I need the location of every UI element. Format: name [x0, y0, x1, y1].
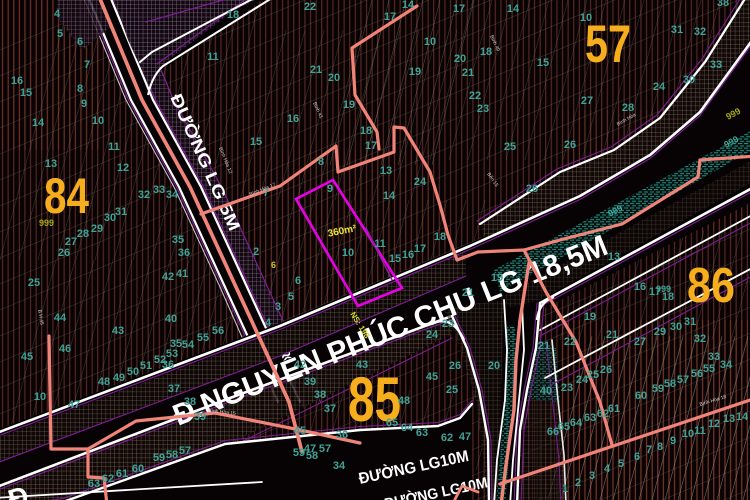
- svg-text:20: 20: [488, 360, 500, 372]
- svg-text:14: 14: [383, 190, 396, 202]
- svg-text:3: 3: [589, 470, 595, 482]
- svg-text:8: 8: [657, 441, 663, 453]
- svg-text:45: 45: [426, 371, 438, 383]
- svg-text:8: 8: [77, 83, 83, 95]
- svg-text:50: 50: [127, 366, 139, 378]
- svg-text:16: 16: [402, 249, 414, 261]
- svg-text:6: 6: [634, 451, 640, 463]
- svg-text:19: 19: [343, 99, 355, 111]
- svg-text:58: 58: [306, 450, 318, 462]
- svg-text:29: 29: [91, 223, 103, 235]
- svg-text:20: 20: [328, 72, 340, 84]
- svg-text:8: 8: [318, 156, 324, 168]
- svg-text:64: 64: [401, 422, 414, 434]
- svg-text:43: 43: [356, 359, 368, 371]
- svg-text:24: 24: [414, 176, 427, 188]
- svg-text:19: 19: [491, 272, 503, 284]
- svg-text:86: 86: [687, 259, 735, 313]
- svg-text:11: 11: [207, 51, 219, 63]
- svg-text:56: 56: [212, 325, 224, 337]
- svg-text:21: 21: [462, 287, 474, 299]
- svg-text:999: 999: [39, 218, 54, 228]
- svg-text:9: 9: [81, 98, 87, 110]
- svg-text:16: 16: [11, 75, 23, 87]
- svg-text:57: 57: [179, 445, 191, 457]
- svg-text:18: 18: [227, 9, 239, 21]
- svg-text:18: 18: [480, 46, 492, 58]
- svg-text:58: 58: [166, 449, 178, 461]
- svg-text:63: 63: [416, 427, 428, 439]
- svg-text:21: 21: [538, 340, 550, 352]
- svg-text:53: 53: [166, 348, 178, 360]
- svg-text:31: 31: [684, 316, 696, 328]
- svg-text:11: 11: [374, 238, 386, 250]
- svg-text:64: 64: [570, 417, 583, 429]
- svg-text:7: 7: [646, 444, 652, 456]
- svg-text:63: 63: [584, 412, 596, 424]
- svg-text:57: 57: [677, 374, 689, 386]
- svg-text:36: 36: [336, 429, 348, 441]
- svg-text:27: 27: [634, 336, 646, 348]
- svg-text:13: 13: [380, 165, 392, 177]
- svg-text:60: 60: [132, 463, 144, 475]
- svg-text:13: 13: [45, 158, 57, 170]
- svg-text:6: 6: [271, 260, 276, 270]
- svg-text:12: 12: [117, 162, 129, 174]
- svg-text:17: 17: [453, 3, 465, 15]
- svg-text:10: 10: [92, 115, 104, 127]
- svg-text:65: 65: [558, 421, 570, 433]
- svg-text:47: 47: [68, 399, 80, 411]
- svg-text:26: 26: [58, 247, 70, 259]
- svg-text:4: 4: [54, 8, 61, 20]
- svg-text:55: 55: [703, 363, 715, 375]
- svg-text:14: 14: [32, 117, 45, 129]
- svg-text:26: 26: [449, 360, 461, 372]
- svg-text:48: 48: [98, 376, 110, 388]
- svg-text:34: 34: [333, 460, 346, 472]
- svg-text:62: 62: [102, 473, 114, 485]
- svg-text:999: 999: [656, 284, 671, 294]
- svg-text:45: 45: [21, 351, 33, 363]
- svg-text:24: 24: [653, 81, 666, 93]
- svg-text:15: 15: [250, 136, 262, 148]
- svg-text:51: 51: [140, 360, 152, 372]
- svg-text:40: 40: [165, 313, 177, 325]
- svg-text:58: 58: [664, 378, 676, 390]
- svg-text:6: 6: [77, 36, 83, 48]
- svg-text:5: 5: [288, 291, 294, 303]
- svg-text:19: 19: [409, 66, 421, 78]
- svg-text:46: 46: [59, 343, 71, 355]
- svg-text:22: 22: [304, 1, 316, 13]
- svg-text:33: 33: [708, 351, 720, 363]
- svg-text:32: 32: [138, 189, 150, 201]
- svg-text:14: 14: [507, 3, 520, 15]
- svg-text:38: 38: [184, 396, 196, 408]
- svg-text:37: 37: [324, 403, 336, 415]
- svg-text:10: 10: [342, 247, 354, 259]
- svg-text:10: 10: [424, 36, 436, 48]
- svg-text:23: 23: [442, 318, 454, 330]
- svg-text:30: 30: [104, 212, 116, 224]
- svg-text:25: 25: [446, 384, 458, 396]
- svg-text:48: 48: [398, 395, 410, 407]
- svg-text:25: 25: [504, 141, 516, 153]
- svg-text:7: 7: [84, 59, 90, 71]
- svg-text:39: 39: [194, 411, 206, 423]
- svg-text:14: 14: [736, 411, 749, 423]
- svg-text:11: 11: [694, 425, 706, 437]
- svg-text:61: 61: [116, 468, 128, 480]
- svg-text:13: 13: [608, 251, 620, 263]
- svg-text:16: 16: [634, 281, 646, 293]
- svg-text:17: 17: [365, 140, 377, 152]
- svg-text:21: 21: [310, 64, 322, 76]
- svg-text:10: 10: [34, 391, 46, 403]
- svg-text:33: 33: [153, 184, 165, 196]
- svg-text:36: 36: [178, 247, 190, 259]
- svg-text:55: 55: [197, 332, 209, 344]
- svg-text:1: 1: [562, 483, 568, 495]
- svg-text:5: 5: [618, 458, 624, 470]
- svg-text:34: 34: [720, 359, 733, 371]
- svg-text:19: 19: [584, 311, 596, 323]
- svg-text:63: 63: [88, 478, 100, 490]
- svg-text:41: 41: [176, 268, 188, 280]
- svg-text:17: 17: [384, 11, 396, 23]
- svg-text:3: 3: [275, 301, 281, 313]
- svg-text:4: 4: [604, 463, 611, 475]
- svg-text:22: 22: [469, 90, 481, 102]
- svg-text:66: 66: [547, 426, 559, 438]
- svg-text:23: 23: [561, 382, 573, 394]
- svg-text:45: 45: [294, 425, 306, 437]
- svg-text:17: 17: [414, 243, 426, 255]
- svg-text:31: 31: [671, 24, 683, 36]
- svg-text:6: 6: [295, 275, 301, 287]
- svg-text:16: 16: [287, 113, 299, 125]
- svg-text:57: 57: [319, 443, 331, 455]
- svg-text:9: 9: [670, 435, 676, 447]
- svg-text:61: 61: [608, 403, 620, 415]
- svg-text:26: 26: [564, 139, 576, 151]
- svg-text:43: 43: [112, 325, 124, 337]
- svg-text:56: 56: [691, 368, 703, 380]
- svg-text:11: 11: [108, 141, 120, 153]
- svg-text:60: 60: [635, 390, 647, 402]
- svg-text:15: 15: [20, 87, 32, 99]
- svg-text:18: 18: [434, 231, 446, 243]
- svg-text:27: 27: [581, 95, 593, 107]
- svg-text:2: 2: [575, 477, 581, 489]
- svg-text:2: 2: [253, 246, 259, 258]
- svg-text:9: 9: [327, 183, 333, 195]
- svg-text:30: 30: [670, 321, 682, 333]
- svg-text:15: 15: [389, 253, 401, 265]
- svg-text:42: 42: [162, 271, 174, 283]
- svg-text:23: 23: [477, 103, 489, 115]
- svg-text:32: 32: [694, 26, 706, 38]
- svg-text:12: 12: [708, 418, 720, 430]
- svg-text:25: 25: [28, 277, 40, 289]
- svg-text:28: 28: [77, 228, 89, 240]
- svg-text:44: 44: [54, 312, 67, 324]
- svg-text:26: 26: [600, 364, 612, 376]
- svg-text:13: 13: [723, 413, 735, 425]
- svg-text:37: 37: [168, 383, 180, 395]
- svg-text:30: 30: [683, 74, 695, 86]
- svg-text:26: 26: [526, 183, 538, 195]
- svg-text:21: 21: [462, 67, 474, 79]
- svg-text:18: 18: [360, 125, 372, 137]
- svg-text:22: 22: [564, 336, 576, 348]
- svg-text:24: 24: [426, 329, 439, 341]
- svg-text:84: 84: [44, 168, 89, 224]
- svg-text:4: 4: [265, 317, 272, 329]
- svg-text:14: 14: [402, 0, 415, 11]
- svg-text:5: 5: [57, 28, 63, 40]
- svg-text:49: 49: [113, 372, 125, 384]
- svg-text:59: 59: [652, 383, 664, 395]
- svg-text:31: 31: [115, 206, 127, 218]
- svg-text:47: 47: [459, 431, 471, 443]
- svg-text:32: 32: [694, 333, 706, 345]
- svg-text:59: 59: [153, 452, 165, 464]
- svg-text:10: 10: [682, 428, 694, 440]
- svg-text:65: 65: [386, 417, 398, 429]
- svg-text:34: 34: [166, 189, 179, 201]
- svg-text:62: 62: [597, 408, 609, 420]
- svg-text:52: 52: [154, 354, 166, 366]
- svg-text:38: 38: [314, 389, 326, 401]
- svg-text:15: 15: [537, 57, 549, 69]
- svg-text:21: 21: [606, 329, 618, 341]
- svg-text:62: 62: [441, 432, 453, 444]
- svg-text:35: 35: [172, 234, 184, 246]
- svg-text:33: 33: [710, 59, 722, 71]
- svg-text:40: 40: [540, 385, 552, 397]
- svg-text:39: 39: [304, 376, 316, 388]
- svg-text:20: 20: [454, 53, 466, 65]
- svg-text:59: 59: [293, 447, 305, 459]
- svg-text:25: 25: [587, 369, 599, 381]
- svg-text:54: 54: [182, 339, 195, 351]
- svg-text:10: 10: [580, 12, 592, 24]
- svg-text:38: 38: [717, 0, 729, 9]
- svg-text:29: 29: [654, 326, 666, 338]
- svg-text:42: 42: [294, 359, 306, 371]
